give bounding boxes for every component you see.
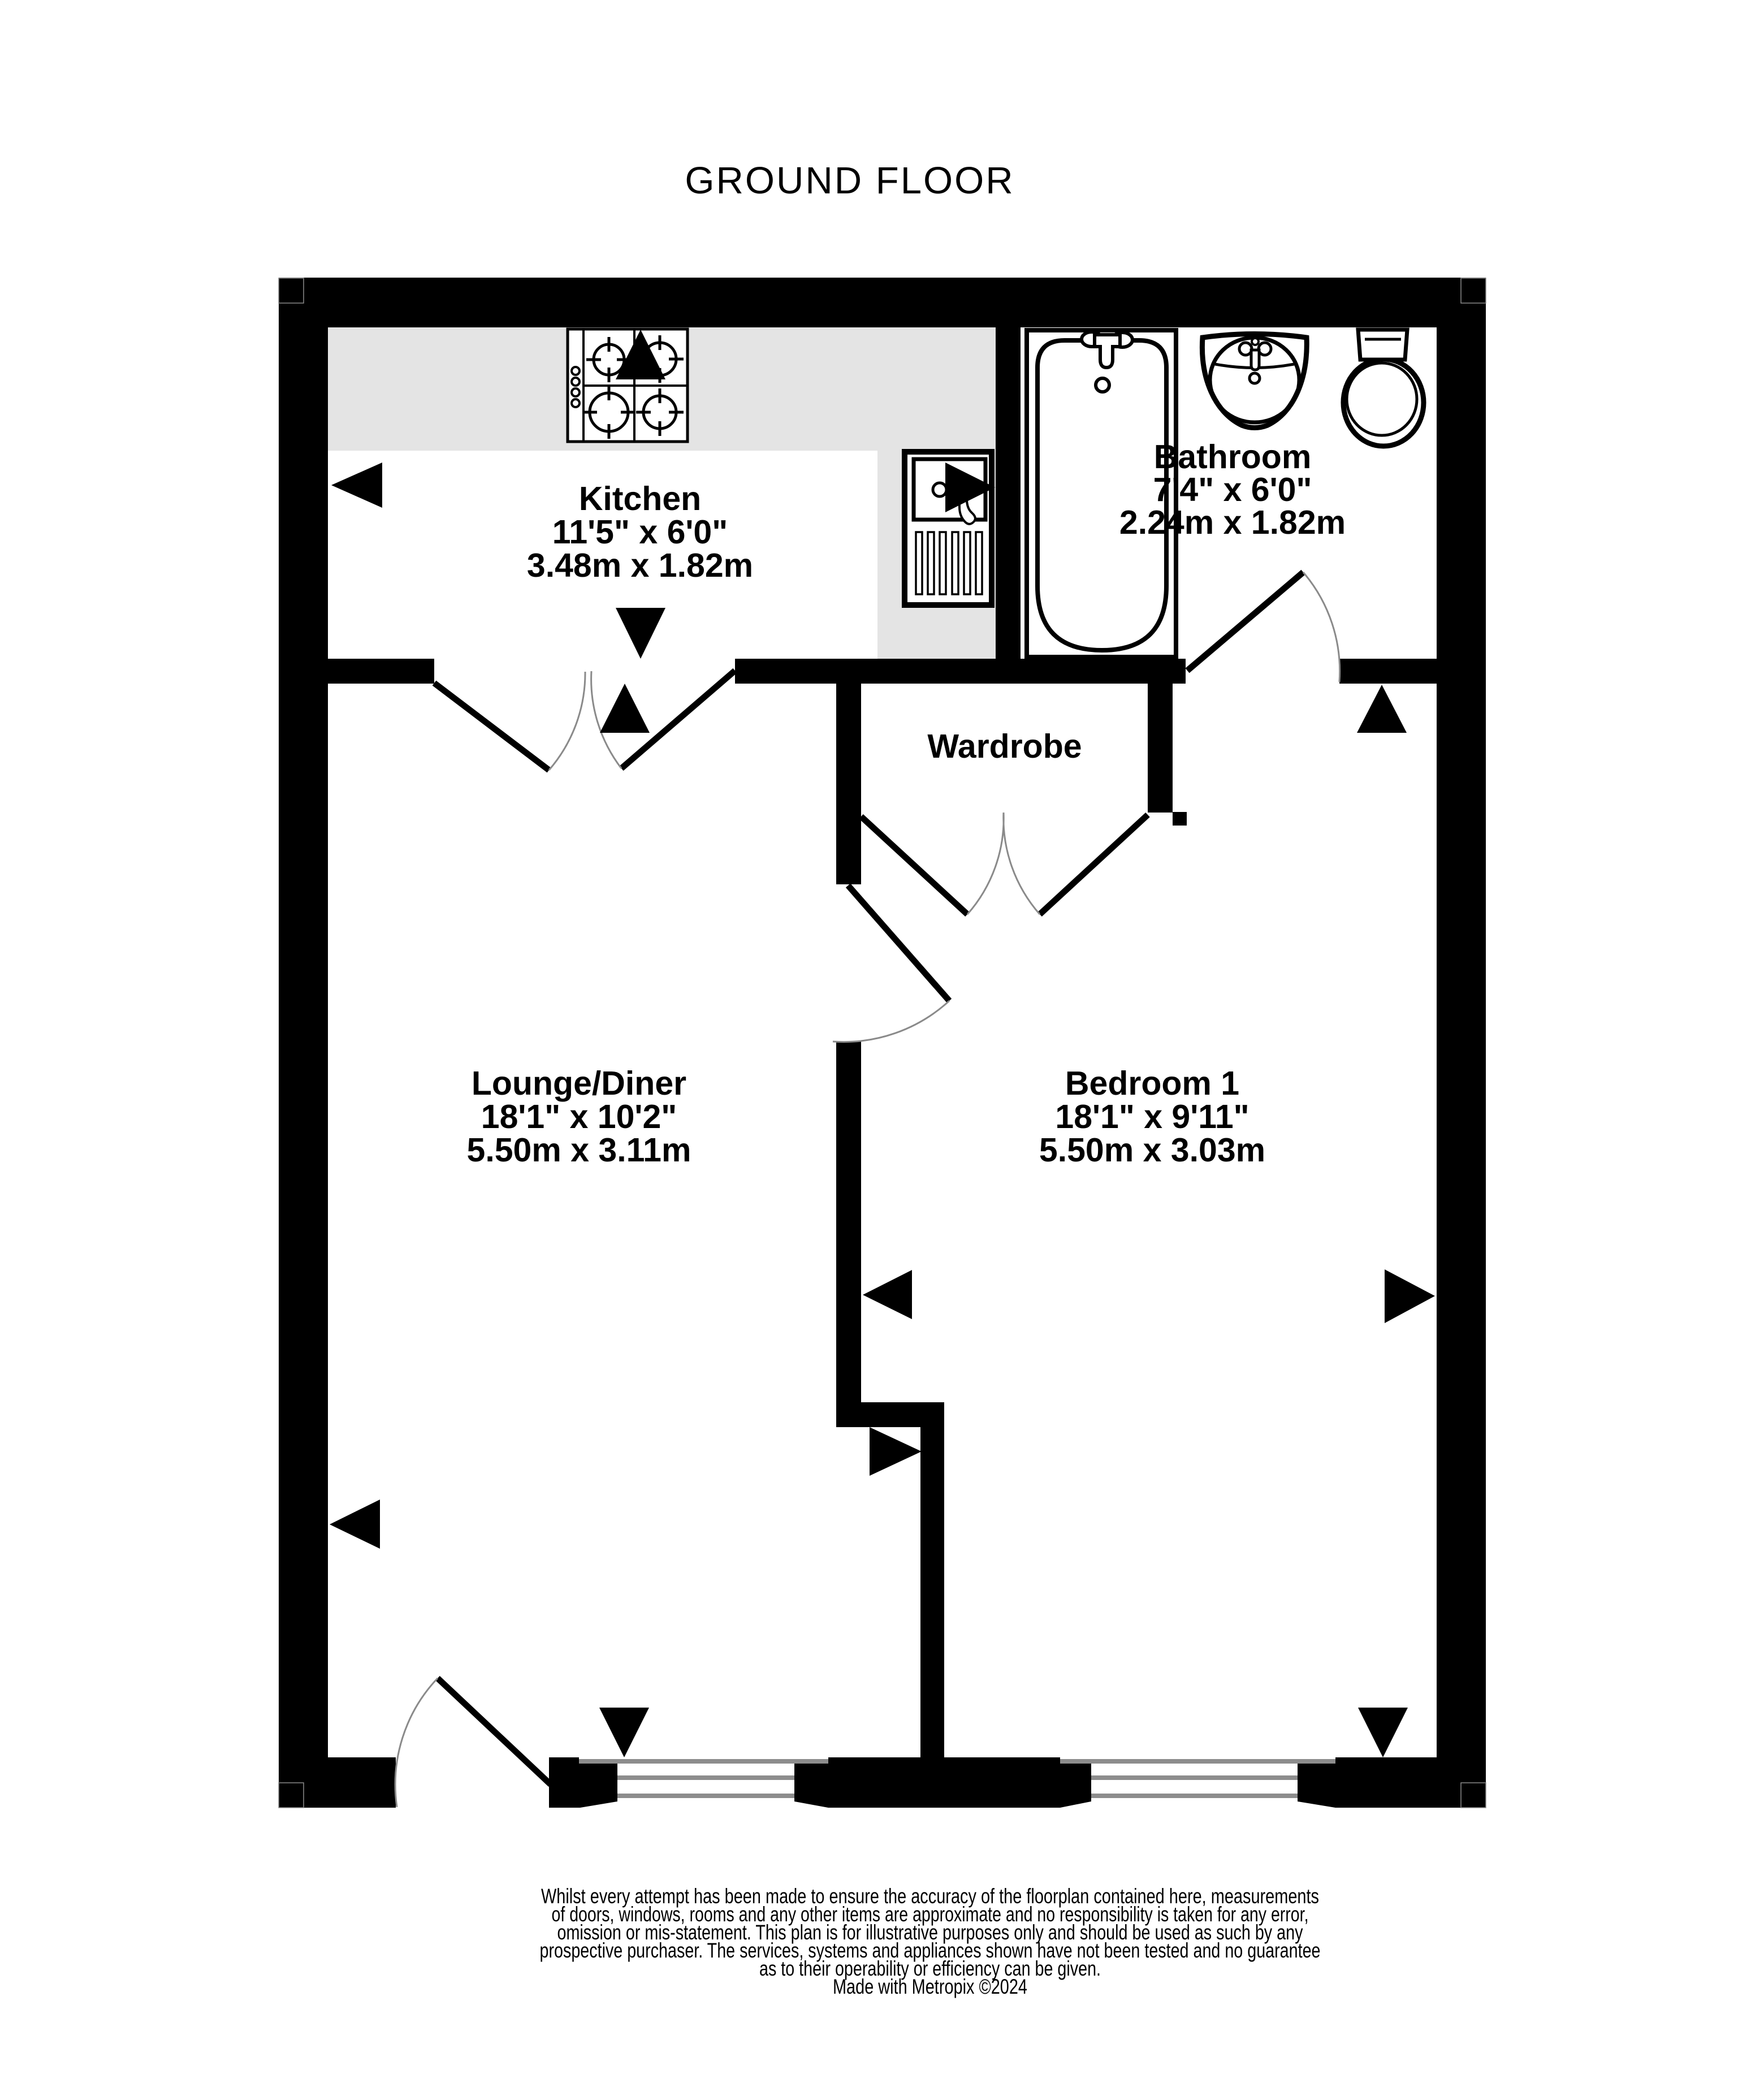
svg-text:Lounge/Diner: Lounge/Diner (472, 1065, 686, 1102)
svg-text:5.50m x 3.11m: 5.50m x 3.11m (467, 1131, 691, 1169)
svg-text:Kitchen: Kitchen (579, 480, 701, 517)
svg-text:2.24m x 1.82m: 2.24m x 1.82m (1119, 504, 1346, 541)
svg-text:Bedroom 1: Bedroom 1 (1065, 1065, 1239, 1102)
svg-text:7'4" x 6'0": 7'4" x 6'0" (1153, 471, 1312, 508)
svg-text:3.48m x 1.82m: 3.48m x 1.82m (527, 547, 753, 584)
svg-text:5.50m x 3.03m: 5.50m x 3.03m (1039, 1131, 1265, 1169)
svg-text:11'5" x 6'0": 11'5" x 6'0" (552, 513, 728, 551)
svg-text:18'1" x 9'11": 18'1" x 9'11" (1055, 1098, 1249, 1135)
svg-text:Wardrobe: Wardrobe (927, 728, 1082, 765)
svg-text:Made with Metropix ©2024: Made with Metropix ©2024 (833, 1975, 1027, 1998)
svg-text:Bathroom: Bathroom (1154, 438, 1312, 476)
svg-text:18'1" x 10'2": 18'1" x 10'2" (481, 1098, 677, 1135)
svg-text:GROUND FLOOR: GROUND FLOOR (685, 159, 1014, 202)
